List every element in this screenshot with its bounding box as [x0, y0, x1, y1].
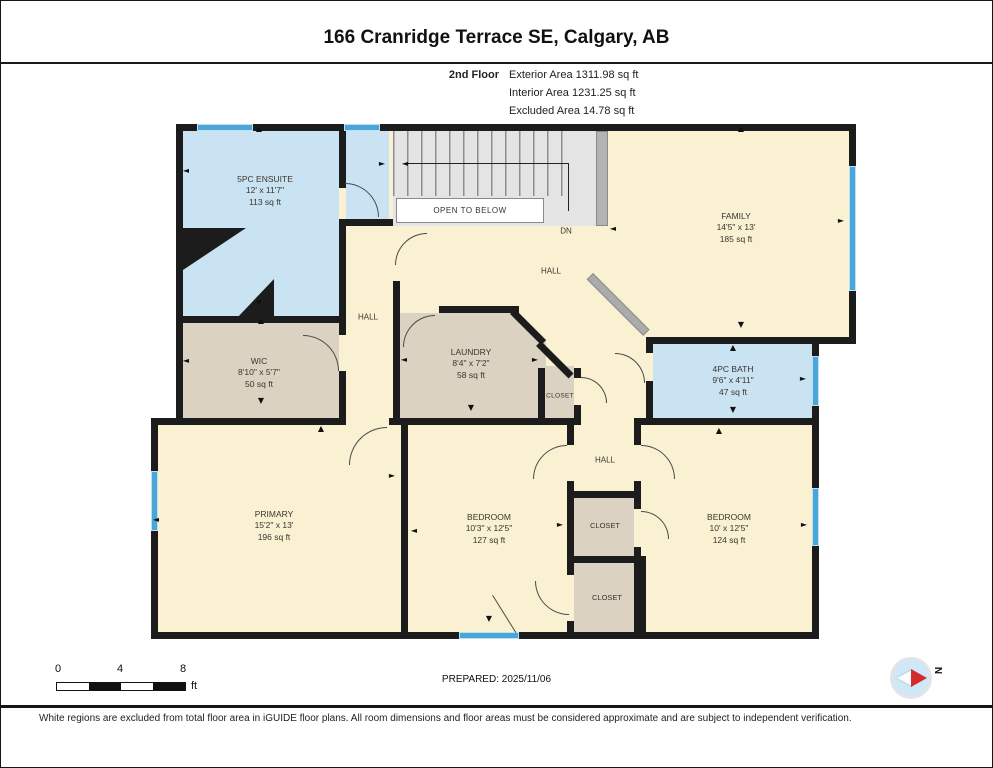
measure-arrow-right-icon: ► [838, 217, 844, 225]
room-dims: 12' x 11'7" [237, 185, 293, 196]
room-label-bath: 4PC BATH 9'6" x 4'11" 47 sq ft [712, 364, 753, 398]
room-name: HALL [541, 267, 561, 278]
measure-arrow-right-icon: ► [557, 521, 563, 529]
measure-arrow-down-icon: ▼ [486, 615, 492, 623]
wall [151, 418, 346, 425]
compass-north-label: N [932, 667, 943, 674]
wall [567, 491, 641, 498]
wall [574, 405, 581, 425]
compass: N [890, 657, 950, 703]
room-name: BEDROOM [707, 512, 751, 523]
wall [401, 425, 408, 632]
compass-needle-south-icon [897, 670, 912, 686]
compass-needle-north-icon [911, 669, 927, 687]
measure-arrow-up-icon: ▲ [730, 344, 736, 352]
room-name: CLOSET [590, 521, 620, 531]
measure-arrow-down-icon: ▼ [468, 404, 474, 412]
room-ensuite [183, 131, 339, 316]
room-area: 185 sq ft [717, 234, 756, 245]
room-dims: 9'6" x 4'11" [712, 375, 753, 386]
room-label-closet-lower: CLOSET [592, 593, 622, 603]
measure-arrow-down-icon: ▼ [730, 406, 736, 414]
measure-arrow-up-icon: ▲ [738, 125, 744, 133]
wall [339, 323, 346, 335]
room-label-closet-mid: CLOSET [590, 521, 620, 531]
room-name: PRIMARY [255, 509, 294, 520]
room-area: 58 sq ft [451, 370, 491, 381]
floor-plan: ◄ OPEN TO BELOW DN [141, 113, 861, 653]
wall [339, 226, 346, 316]
wall [339, 371, 346, 425]
stair-direction-line [568, 163, 569, 211]
room-label-primary: PRIMARY 15'2" x 13' 196 sq ft [255, 509, 294, 543]
room-name: HALL [595, 456, 615, 467]
measure-arrow-left-icon: ◄ [401, 356, 407, 364]
room-label-wic: WIC 8'10" x 5'7" 50 sq ft [238, 356, 280, 390]
room-area: 47 sq ft [712, 387, 753, 398]
wall [176, 124, 856, 131]
stair-direction-line [407, 163, 568, 164]
stairs-down-label: DN [560, 227, 572, 238]
wall [538, 368, 545, 425]
footer-disclaimer: White regions are excluded from total fl… [39, 713, 959, 724]
wall [183, 316, 346, 323]
wall [646, 344, 653, 353]
wall [439, 306, 519, 313]
measure-arrow-left-icon: ◄ [153, 516, 159, 524]
measure-arrow-left-icon: ◄ [610, 225, 616, 233]
room-label-closet-laundry: CLOSET [546, 393, 574, 402]
wall [339, 219, 393, 226]
exterior-cutout [819, 344, 861, 653]
room-area: 124 sq ft [707, 535, 751, 546]
measure-arrow-right-icon: ► [800, 375, 806, 383]
wall [567, 621, 574, 632]
room-label-bedroom-mid: BEDROOM 10'3" x 12'5" 127 sq ft [466, 512, 513, 546]
measure-arrow-down-icon: ▼ [258, 397, 264, 405]
room-label-hall-vertical: HALL [358, 313, 378, 324]
window [812, 488, 819, 546]
room-dims: 10'3" x 12'5" [466, 523, 513, 534]
footer-divider [1, 705, 992, 708]
prepared-date: PREPARED: 2025/11/06 [1, 674, 992, 685]
room-name: 5PC ENSUITE [237, 174, 293, 185]
measure-arrow-right-icon: ► [532, 356, 538, 364]
room-area: 113 sq ft [237, 197, 293, 208]
exterior-cutout [141, 113, 176, 418]
room-dims: 15'2" x 13' [255, 520, 294, 531]
room-area: 127 sq ft [466, 535, 513, 546]
room-name: HALL [358, 313, 378, 324]
wall [567, 425, 574, 445]
room-name: FAMILY [717, 211, 756, 222]
measure-arrow-down-icon: ▼ [738, 321, 744, 329]
wall [567, 556, 646, 563]
room-area: 50 sq ft [238, 379, 280, 390]
room-label-hall-upper: HALL [541, 267, 561, 278]
window [197, 124, 253, 131]
measure-arrow-up-icon: ▲ [258, 317, 264, 325]
wall [634, 418, 819, 425]
measure-arrow-up-icon: ▲ [716, 427, 722, 435]
wall [634, 425, 641, 445]
room-label-laundry: LAUNDRY 8'4" x 7'2" 58 sq ft [451, 347, 491, 381]
room-area: 196 sq ft [255, 532, 294, 543]
room-label-family: FAMILY 14'5" x 13' 185 sq ft [717, 211, 756, 245]
room-dims: 14'5" x 13' [717, 222, 756, 233]
room-name: CLOSET [592, 593, 622, 603]
wall [393, 281, 400, 425]
interior-area: Interior Area 1231.25 sq ft [509, 87, 636, 99]
wall [339, 124, 346, 188]
wall [389, 418, 574, 425]
exterior-area: Exterior Area 1311.98 sq ft [509, 69, 638, 81]
measure-arrow-down-icon: ▼ [256, 299, 262, 307]
room-name: BEDROOM [466, 512, 513, 523]
wall [574, 368, 581, 378]
measure-arrow-up-icon: ▲ [256, 125, 262, 133]
room-label-hall-lower: HALL [595, 456, 615, 467]
room-name: CLOSET [546, 393, 574, 402]
floor-label: 2nd Floor [381, 69, 499, 81]
room-dims: 8'4" x 7'2" [451, 358, 491, 369]
room-name: 4PC BATH [712, 364, 753, 375]
measure-arrow-right-icon: ► [801, 521, 807, 529]
measure-arrow-right-icon: ► [389, 472, 395, 480]
window [849, 166, 856, 291]
wall [646, 337, 856, 344]
window [344, 124, 380, 131]
room-label-ensuite: 5PC ENSUITE 12' x 11'7" 113 sq ft [237, 174, 293, 208]
measure-arrow-left-icon: ◄ [411, 527, 417, 535]
room-dims: 8'10" x 5'7" [238, 367, 280, 378]
window [459, 632, 519, 639]
floor-plan-page: 166 Cranridge Terrace SE, Calgary, AB 2n… [0, 0, 993, 768]
measure-arrow-up-icon: ▲ [318, 425, 324, 433]
page-title: 166 Cranridge Terrace SE, Calgary, AB [1, 27, 992, 49]
room-label-bedroom-right: BEDROOM 10' x 12'5" 124 sq ft [707, 512, 751, 546]
wall [646, 381, 653, 425]
wall [639, 563, 646, 632]
stair-arrow-icon: ◄ [402, 160, 408, 168]
measure-arrow-right-icon: ► [379, 160, 385, 168]
window [812, 356, 819, 406]
room-name: WIC [238, 356, 280, 367]
room-dims: 10' x 12'5" [707, 523, 751, 534]
measure-arrow-left-icon: ◄ [183, 167, 189, 175]
room-name: LAUNDRY [451, 347, 491, 358]
measure-arrow-left-icon: ◄ [183, 357, 189, 365]
stair-railing [596, 131, 608, 226]
header-divider [1, 62, 992, 64]
open-to-below-label: OPEN TO BELOW [396, 198, 544, 223]
